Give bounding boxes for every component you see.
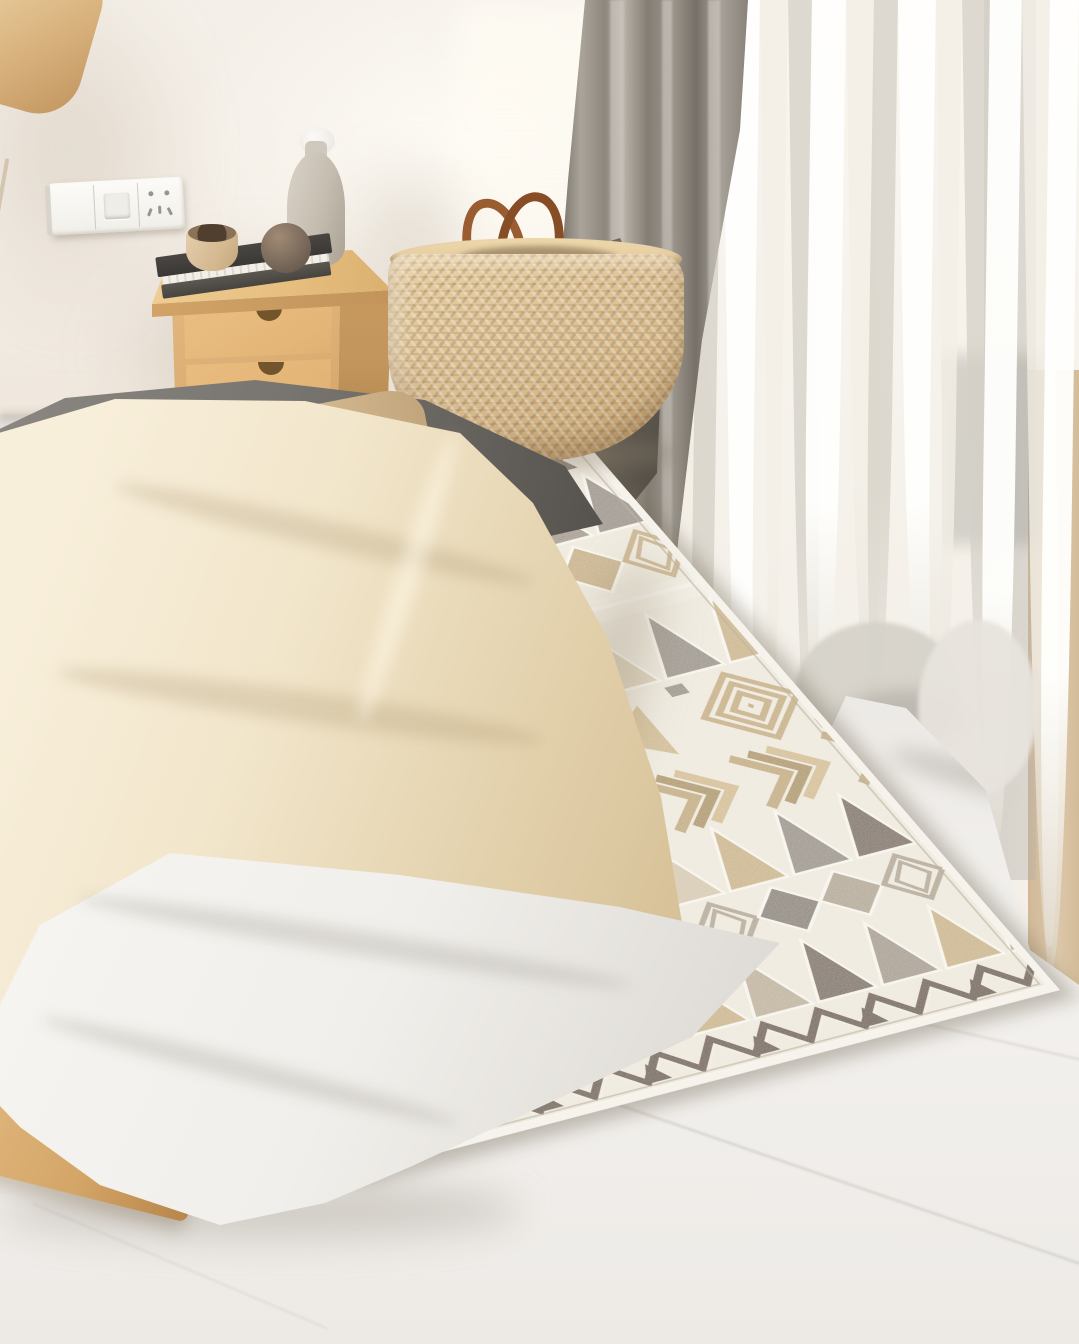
switch-rocker — [103, 192, 130, 219]
outlet-slit — [167, 207, 173, 215]
coffee-cup-rim — [188, 224, 236, 242]
outlet-hole — [148, 191, 153, 196]
switch-plate-divider — [137, 183, 140, 227]
outlet-slit — [147, 208, 153, 217]
switch-plate-divider — [93, 185, 96, 229]
outlet-slit — [158, 206, 161, 214]
decor-sphere — [261, 223, 311, 273]
outlet-hole — [164, 190, 169, 195]
light-switch-panel — [49, 177, 186, 236]
bedroom-scene — [0, 0, 1079, 1344]
